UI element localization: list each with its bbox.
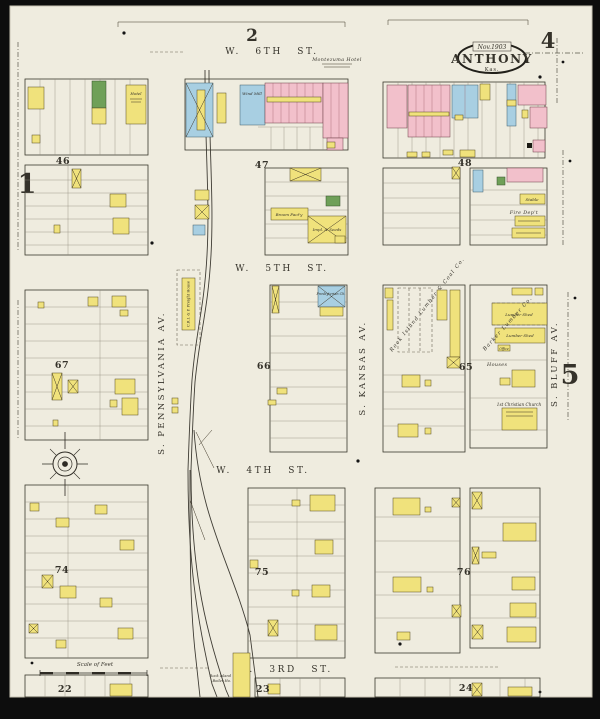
- building-yellow-x: [290, 168, 321, 181]
- building-pink: [323, 83, 348, 138]
- christian-church-label: 1st Christian Church: [497, 402, 542, 407]
- adjacent-sheet-number-left: 1: [18, 169, 37, 200]
- office-label: Office: [499, 347, 509, 351]
- street-label-pennsylvania: S. PENNSYLVANIA AV.: [157, 311, 167, 455]
- building-yellow: [110, 194, 126, 207]
- building-yellow: [385, 288, 393, 298]
- freight-house-label: C.R.I. & P. Freight House: [187, 281, 191, 327]
- building-yellow: [172, 398, 178, 404]
- block-number-46: 46: [56, 156, 70, 167]
- building-yellow-x: [452, 605, 461, 617]
- building-yellow: [88, 297, 98, 306]
- building-yellow: [268, 400, 276, 405]
- building-yellow-x: [472, 492, 482, 509]
- building-yellow: [195, 190, 209, 200]
- adjacent-sheet-number-top: 2: [246, 26, 258, 46]
- street-label-w3rd: W. 3RD ST.: [239, 665, 333, 675]
- building-yellow: [425, 380, 431, 386]
- scale-seg: [40, 672, 53, 674]
- presbyterian-church: Presbyterian Ch.: [316, 286, 346, 316]
- building-yellow: [507, 100, 516, 106]
- building-yellow: [510, 603, 536, 617]
- street-label-bluff: S. BLUFF AV.: [550, 321, 560, 407]
- building-yellow: [422, 152, 430, 157]
- building-yellow-x: [452, 498, 460, 507]
- building-yellow: [397, 632, 410, 640]
- building-yellow: [110, 400, 117, 407]
- street-label-w5th: W. 5TH ST.: [235, 264, 329, 274]
- sanborn-map-scan: 2 4 1 5 Nov.1903 ANTHONY Kas. W. 6TH ST.…: [0, 0, 600, 719]
- scale-seg: [118, 672, 131, 674]
- building-pink: [387, 85, 407, 128]
- dot: [398, 642, 401, 645]
- building-yellow: [393, 577, 421, 592]
- building-yellow-x: [195, 205, 209, 219]
- building-yellow: [508, 687, 532, 696]
- building-yellow: [56, 640, 66, 648]
- broom-factory-label: Broom Fact'y: [275, 212, 304, 217]
- building-yellow: [30, 503, 39, 511]
- building-yellow: [480, 84, 490, 100]
- dot: [122, 31, 125, 34]
- houses-label: Houses: [486, 362, 507, 368]
- montezuma-hotel-label: Montezuma Hotel: [311, 57, 362, 63]
- block-number-66: 66: [257, 361, 271, 372]
- building-yellow: [217, 93, 226, 123]
- street-label-kansas: S. KANSAS AV.: [358, 320, 368, 415]
- building-blue: [473, 170, 483, 192]
- street-label-w4th: W. 4TH ST.: [216, 466, 310, 476]
- building-yellow: [482, 552, 496, 558]
- church-building: [502, 408, 537, 430]
- building-yellow: [507, 627, 536, 642]
- block-number-67: 67: [55, 360, 69, 371]
- building-yellow: [38, 302, 44, 308]
- building-yellow: [315, 540, 333, 554]
- block-number-48: 48: [458, 158, 472, 169]
- stamp-city: ANTHONY: [450, 52, 533, 66]
- building-yellow: [112, 296, 126, 307]
- stamp-state: Kas.: [485, 67, 499, 73]
- building-yellow: [28, 87, 44, 109]
- building-yellow: [277, 388, 287, 394]
- building-pink: [408, 85, 450, 137]
- stable: Stable: [520, 194, 545, 204]
- building-yellow: [172, 407, 178, 413]
- block-number-75: 75: [255, 567, 269, 578]
- building-yellow-x: [472, 625, 483, 639]
- dot: [574, 297, 577, 300]
- building-green: [326, 196, 340, 206]
- building-yellow-x: [72, 169, 81, 188]
- building-yellow: [327, 142, 335, 148]
- fire-dept-label: Fire Dep't: [509, 210, 539, 216]
- lumber-shed-label-2: Lumber Shed: [505, 333, 534, 338]
- building-yellow: [122, 398, 138, 415]
- pink-business-row: [408, 85, 450, 137]
- building-yellow-x: [42, 575, 53, 588]
- building-yellow: [312, 585, 330, 597]
- broom-factory: Broom Fact'y: [271, 208, 308, 220]
- building-yellow: [425, 507, 431, 512]
- building-yellow: [315, 625, 337, 640]
- building-yellow: [115, 379, 135, 394]
- building-yellow: [320, 307, 343, 316]
- boiler-house-label-1: Rock Island: [209, 674, 232, 678]
- building-yellow-x: [272, 286, 279, 313]
- building-yellow: [512, 288, 532, 295]
- street-label-w6th: W. 6TH ST.: [225, 47, 319, 57]
- scale-label: Scale of Feet: [77, 662, 114, 668]
- block-number-23: 23: [256, 684, 270, 695]
- presbyterian-label: Presbyterian Ch.: [316, 292, 346, 296]
- boiler-house-building: [233, 653, 250, 697]
- building-yellow: [292, 500, 300, 506]
- building-pink: [533, 140, 545, 152]
- building-yellow: [267, 97, 321, 102]
- office: Office: [498, 345, 510, 351]
- building-yellow: [512, 577, 535, 590]
- stamp-date: Nov.1903: [477, 44, 507, 51]
- building-yellow-x: [268, 620, 278, 636]
- building-yellow: [335, 236, 345, 243]
- building-yellow: [407, 152, 417, 157]
- compass-center: [63, 462, 68, 467]
- building-yellow: [310, 495, 335, 511]
- building-yellow: [522, 110, 528, 118]
- building-yellow: [54, 225, 60, 233]
- boiler-house-label-2: Boiler Ho.: [212, 679, 231, 683]
- stable-label: Stable: [526, 197, 540, 202]
- building-yellow: [32, 135, 40, 143]
- building-yellow: [100, 598, 112, 607]
- dot: [569, 160, 572, 163]
- building-yellow: [425, 428, 431, 434]
- building-green: [92, 81, 106, 108]
- building-yellow: [398, 424, 418, 437]
- building-yellow: [92, 108, 106, 124]
- building-yellow: [437, 290, 447, 320]
- building-yellow: [455, 115, 463, 120]
- building-yellow-x: [68, 380, 78, 393]
- hotel-label: Hotel: [129, 91, 142, 96]
- block-number-22: 22: [58, 684, 72, 695]
- building-green: [497, 177, 505, 185]
- building-yellow: [393, 498, 420, 515]
- building-yellow: [460, 150, 475, 157]
- building-yellow: [56, 518, 69, 527]
- building-pink: [265, 83, 323, 123]
- adjacent-sheet-number-right: 5: [561, 360, 580, 391]
- scale-seg: [66, 672, 79, 674]
- building-blue: [193, 225, 205, 235]
- sheet-number: 4: [541, 28, 556, 53]
- building-yellow: [402, 375, 420, 387]
- building-yellow: [443, 150, 453, 155]
- building-yellow-x: [29, 624, 38, 633]
- block-number-76: 76: [457, 567, 471, 578]
- building-yellow: [95, 505, 107, 514]
- mill-building: Wind Mill: [240, 85, 265, 125]
- dot: [538, 75, 541, 78]
- building-yellow-x: [472, 683, 482, 696]
- block-number-65: 65: [459, 362, 473, 373]
- building-yellow: [409, 112, 449, 116]
- dot: [150, 241, 153, 244]
- dot: [562, 61, 565, 64]
- building-yellow: [450, 290, 460, 357]
- building-yellow: [120, 540, 134, 550]
- building-yellow-x: [52, 373, 62, 400]
- building-yellow: [535, 288, 543, 295]
- building-yellow: [118, 628, 133, 639]
- grain-elevator: [186, 83, 213, 137]
- building-yellow: [113, 218, 129, 234]
- implements-label: Impl. & Seeds: [312, 227, 342, 232]
- building-yellow: [503, 523, 536, 541]
- building-yellow: [500, 378, 510, 385]
- block-number-47: 47: [255, 160, 269, 171]
- building-yellow: [197, 90, 205, 130]
- building-pink: [530, 107, 547, 128]
- building-yellow: [292, 590, 299, 596]
- blue-pair: [452, 85, 478, 120]
- building-yellow: [53, 420, 58, 426]
- block-number-74: 74: [55, 565, 69, 576]
- building-black: [527, 143, 532, 148]
- building-yellow: [120, 310, 128, 316]
- building-yellow: [387, 300, 393, 330]
- wind-mill-label: Wind Mill: [242, 91, 262, 96]
- dot: [356, 459, 359, 462]
- building-yellow: [512, 370, 535, 387]
- map-canvas: 2 4 1 5 Nov.1903 ANTHONY Kas. W. 6TH ST.…: [0, 0, 600, 719]
- dot: [31, 662, 34, 665]
- christian-church: 1st Christian Church: [497, 402, 542, 430]
- building-yellow: [60, 586, 76, 598]
- building-pink: [518, 85, 546, 105]
- building-pink: [507, 168, 543, 182]
- building-yellow-x: [472, 547, 479, 564]
- block-number-24: 24: [459, 683, 473, 694]
- scale-seg: [92, 672, 105, 674]
- building-yellow: [427, 587, 433, 592]
- building-yellow: [110, 684, 132, 696]
